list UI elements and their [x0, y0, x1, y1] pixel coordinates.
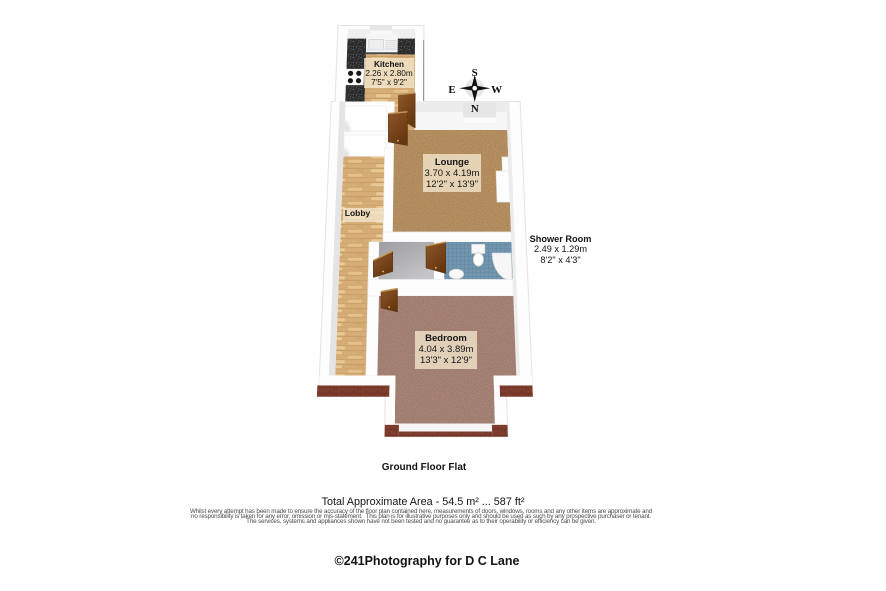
svg-text:S: S [472, 67, 478, 79]
svg-text:W: W [491, 84, 502, 96]
svg-text:N: N [471, 103, 479, 115]
svg-text:E: E [448, 84, 455, 96]
